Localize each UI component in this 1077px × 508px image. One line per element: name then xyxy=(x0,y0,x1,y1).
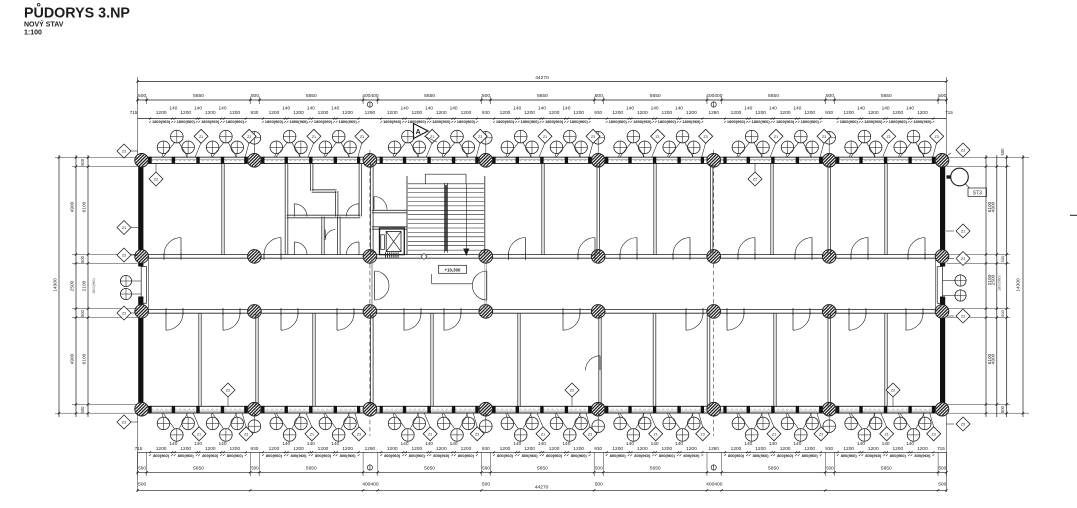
svg-text:1800(960): 1800(960) xyxy=(338,119,357,124)
svg-text:Z3: Z3 xyxy=(704,135,708,139)
svg-text:1800(960): 1800(960) xyxy=(457,119,476,124)
svg-text:5650: 5650 xyxy=(537,465,548,471)
svg-text:Z1: Z1 xyxy=(428,432,432,436)
svg-text:1200: 1200 xyxy=(868,110,879,116)
svg-text:1200: 1200 xyxy=(843,446,854,452)
svg-text:Z3: Z3 xyxy=(122,150,126,154)
svg-text:5650: 5650 xyxy=(881,465,892,471)
svg-text:800(960): 800(960) xyxy=(728,453,745,458)
svg-text:1200: 1200 xyxy=(780,110,791,116)
svg-text:140: 140 xyxy=(169,105,177,111)
svg-text:1800(960): 1800(960) xyxy=(152,119,171,124)
svg-text:500: 500 xyxy=(938,482,946,488)
svg-text:500: 500 xyxy=(251,93,259,99)
svg-text:500: 500 xyxy=(482,482,490,488)
svg-text:800(960): 800(960) xyxy=(753,453,770,458)
svg-text:1800(960): 1800(960) xyxy=(751,119,770,124)
svg-text:2500: 2500 xyxy=(70,280,76,291)
svg-text:1200: 1200 xyxy=(229,446,240,452)
svg-text:6100: 6100 xyxy=(82,201,88,212)
svg-text:Z3: Z3 xyxy=(122,254,126,258)
svg-text:930: 930 xyxy=(594,110,602,115)
svg-text:140: 140 xyxy=(744,441,752,447)
svg-text:500: 500 xyxy=(826,93,834,99)
svg-text:1200: 1200 xyxy=(436,446,447,452)
svg-text:1200: 1200 xyxy=(637,446,648,452)
svg-text:5650: 5650 xyxy=(424,465,435,471)
svg-text:500: 500 xyxy=(595,482,603,488)
svg-text:2100: 2100 xyxy=(82,280,88,291)
svg-text:6100: 6100 xyxy=(82,353,88,364)
svg-text:500: 500 xyxy=(138,93,146,99)
svg-text:Z1: Z1 xyxy=(885,432,889,436)
svg-text:1800(960): 1800(960) xyxy=(609,119,628,124)
svg-text:1200: 1200 xyxy=(411,446,422,452)
svg-text:4900: 4900 xyxy=(70,353,76,364)
svg-text:140: 140 xyxy=(307,441,315,447)
svg-text:1200: 1200 xyxy=(661,446,672,452)
svg-text:1200: 1200 xyxy=(318,110,329,116)
svg-text:1200: 1200 xyxy=(205,446,216,452)
svg-text:1200: 1200 xyxy=(573,446,584,452)
svg-text:140: 140 xyxy=(769,105,777,111)
svg-text:1200: 1200 xyxy=(229,110,240,116)
svg-text:1200: 1200 xyxy=(843,110,854,116)
svg-text:1200: 1200 xyxy=(686,446,697,452)
svg-text:1800(960): 1800(960) xyxy=(520,119,539,124)
svg-text:800(960): 800(960) xyxy=(610,453,627,458)
svg-text:1200: 1200 xyxy=(780,446,791,452)
svg-text:1290: 1290 xyxy=(708,446,719,451)
svg-text:5650: 5650 xyxy=(768,465,779,471)
svg-text:800(960): 800(960) xyxy=(571,453,588,458)
svg-text:Z2: Z2 xyxy=(154,178,158,182)
svg-text:1200: 1200 xyxy=(524,446,535,452)
svg-text:44270: 44270 xyxy=(535,485,549,491)
svg-text:Z3: Z3 xyxy=(357,432,361,436)
svg-text:14300: 14300 xyxy=(53,278,59,292)
svg-text:1200: 1200 xyxy=(755,110,766,116)
svg-text:500: 500 xyxy=(80,309,85,317)
svg-text:1200: 1200 xyxy=(524,110,535,116)
svg-text:800(960): 800(960) xyxy=(890,453,907,458)
svg-text:800(960): 800(960) xyxy=(458,453,475,458)
svg-text:5650: 5650 xyxy=(424,93,435,99)
svg-text:5650: 5650 xyxy=(768,93,779,99)
svg-text:140: 140 xyxy=(857,441,865,447)
svg-text:500: 500 xyxy=(826,465,834,470)
svg-text:500: 500 xyxy=(138,465,146,470)
svg-text:1200: 1200 xyxy=(917,446,928,452)
svg-text:Z3: Z3 xyxy=(478,135,482,139)
svg-text:Z1: Z1 xyxy=(887,135,891,139)
svg-text:5650: 5650 xyxy=(193,93,204,99)
svg-text:140: 140 xyxy=(400,105,408,111)
svg-text:Z3: Z3 xyxy=(122,421,126,425)
svg-text:500: 500 xyxy=(80,255,85,263)
svg-text:Z3: Z3 xyxy=(961,315,965,319)
svg-text:400400: 400400 xyxy=(362,482,379,488)
svg-text:500: 500 xyxy=(938,93,946,99)
svg-text:1200: 1200 xyxy=(387,446,398,452)
svg-text:800(960): 800(960) xyxy=(202,453,219,458)
svg-text:Z2: Z2 xyxy=(570,389,574,393)
svg-text:715: 715 xyxy=(937,446,945,451)
svg-text:140: 140 xyxy=(906,105,914,111)
svg-text:Z3: Z3 xyxy=(244,432,248,436)
svg-text:140: 140 xyxy=(538,105,546,111)
svg-text:1200: 1200 xyxy=(180,446,191,452)
svg-text:500: 500 xyxy=(482,465,490,470)
svg-text:Z1: Z1 xyxy=(197,432,201,436)
svg-text:800(960): 800(960) xyxy=(178,453,195,458)
svg-text:140: 140 xyxy=(857,105,865,111)
svg-text:140: 140 xyxy=(282,441,290,447)
svg-text:140: 140 xyxy=(169,441,177,447)
svg-text:Z3: Z3 xyxy=(819,432,823,436)
svg-text:140: 140 xyxy=(331,441,339,447)
svg-text:1800(960): 1800(960) xyxy=(864,119,883,124)
svg-text:140: 140 xyxy=(400,441,408,447)
svg-text:Z3: Z3 xyxy=(591,135,595,139)
svg-text:1200: 1200 xyxy=(612,110,623,116)
svg-text:1800(960): 1800(960) xyxy=(177,119,196,124)
svg-text:Z3: Z3 xyxy=(961,257,965,261)
svg-text:140: 140 xyxy=(282,105,290,111)
svg-text:Z2: Z2 xyxy=(891,389,895,393)
svg-text:140: 140 xyxy=(793,105,801,111)
svg-text:1800(960): 1800(960) xyxy=(840,119,859,124)
svg-text:1800(960): 1800(960) xyxy=(201,119,220,124)
svg-text:1800(960): 1800(960) xyxy=(776,119,795,124)
svg-text:5650: 5650 xyxy=(537,93,548,99)
svg-text:400400: 400400 xyxy=(706,93,723,99)
svg-text:800(960): 800(960) xyxy=(777,453,794,458)
svg-text:500: 500 xyxy=(251,465,259,470)
svg-text:1800(960): 1800(960) xyxy=(226,119,245,124)
svg-text:140: 140 xyxy=(651,105,659,111)
svg-text:930: 930 xyxy=(482,110,490,115)
svg-text:1200: 1200 xyxy=(156,110,167,116)
svg-text:Z1: Z1 xyxy=(430,135,434,139)
svg-text:140: 140 xyxy=(562,441,570,447)
svg-text:4900: 4900 xyxy=(70,201,76,212)
svg-text:Z1: Z1 xyxy=(541,432,545,436)
svg-text:140: 140 xyxy=(882,105,890,111)
svg-text:Z3: Z3 xyxy=(475,432,479,436)
svg-text:500: 500 xyxy=(80,406,85,414)
svg-text:1800(960): 1800(960) xyxy=(889,119,908,124)
svg-text:500: 500 xyxy=(1000,255,1005,262)
svg-text:1800(960): 1800(960) xyxy=(913,119,932,124)
svg-text:400400: 400400 xyxy=(706,482,723,488)
svg-text:44270: 44270 xyxy=(535,75,549,81)
svg-text:930: 930 xyxy=(825,446,833,451)
svg-text:4900: 4900 xyxy=(990,201,996,212)
svg-text:1200: 1200 xyxy=(500,446,511,452)
svg-text:500: 500 xyxy=(1000,309,1005,316)
svg-text:140: 140 xyxy=(562,105,570,111)
svg-text:800(960): 800(960) xyxy=(522,453,539,458)
svg-text:Z3: Z3 xyxy=(932,432,936,436)
svg-text:1200: 1200 xyxy=(804,446,815,452)
svg-text:500: 500 xyxy=(80,158,85,166)
svg-text:500: 500 xyxy=(482,93,490,99)
svg-text:1200: 1200 xyxy=(180,110,191,116)
svg-text:Z2: Z2 xyxy=(753,178,757,182)
svg-text:Z3: Z3 xyxy=(961,423,965,427)
svg-text:1800(960): 1800(960) xyxy=(801,119,820,124)
svg-text:140: 140 xyxy=(744,105,752,111)
svg-text:1200: 1200 xyxy=(461,110,472,116)
svg-text:800(960): 800(960) xyxy=(634,453,651,458)
svg-text:1200: 1200 xyxy=(731,446,742,452)
svg-text:1800(960): 1800(960) xyxy=(658,119,677,124)
svg-text:800(960): 800(960) xyxy=(340,453,357,458)
svg-text:800(960): 800(960) xyxy=(865,453,882,458)
svg-text:Z3: Z3 xyxy=(247,135,251,139)
svg-text:1800(960): 1800(960) xyxy=(998,275,1002,290)
svg-text:1200: 1200 xyxy=(731,110,742,116)
svg-text:5650: 5650 xyxy=(193,465,204,471)
svg-text:1800(960): 1800(960) xyxy=(314,119,333,124)
svg-text:930: 930 xyxy=(250,446,258,451)
svg-text:1200: 1200 xyxy=(342,110,353,116)
svg-text:Z1: Z1 xyxy=(122,226,126,230)
svg-text:5650: 5650 xyxy=(881,93,892,99)
svg-text:1800(960): 1800(960) xyxy=(92,278,96,293)
svg-text:1200: 1200 xyxy=(269,446,280,452)
svg-text:500: 500 xyxy=(1000,405,1005,413)
svg-text:1:100: 1:100 xyxy=(24,30,42,37)
svg-text:140: 140 xyxy=(194,441,202,447)
svg-text:140: 140 xyxy=(882,441,890,447)
svg-text:14300: 14300 xyxy=(1016,278,1022,292)
svg-text:800(960): 800(960) xyxy=(315,453,332,458)
svg-text:5650: 5650 xyxy=(306,465,317,471)
svg-text:715: 715 xyxy=(130,110,138,115)
svg-text:1200: 1200 xyxy=(573,110,584,116)
svg-text:500: 500 xyxy=(595,93,603,99)
svg-text:2500: 2500 xyxy=(990,274,996,285)
svg-text:800(960): 800(960) xyxy=(683,453,700,458)
svg-text:1200: 1200 xyxy=(612,446,623,452)
svg-text:140: 140 xyxy=(218,441,226,447)
svg-text:140: 140 xyxy=(450,441,458,447)
svg-text:1200: 1200 xyxy=(868,446,879,452)
svg-text:Z1: Z1 xyxy=(961,230,965,234)
svg-text:4900: 4900 xyxy=(990,353,996,364)
svg-text:NOVÝ STAV: NOVÝ STAV xyxy=(24,20,64,29)
svg-text:800(960): 800(960) xyxy=(227,453,244,458)
svg-text:800(960): 800(960) xyxy=(914,453,931,458)
svg-text:1200: 1200 xyxy=(500,110,511,116)
svg-text:800(960): 800(960) xyxy=(802,453,819,458)
svg-text:Z1: Z1 xyxy=(656,135,660,139)
svg-text:1800(960): 1800(960) xyxy=(633,119,652,124)
svg-text:140: 140 xyxy=(425,441,433,447)
svg-text:Z3: Z3 xyxy=(588,432,592,436)
svg-text:Z1: Z1 xyxy=(310,432,314,436)
svg-text:800(960): 800(960) xyxy=(433,453,450,458)
svg-text:140: 140 xyxy=(626,105,634,111)
svg-text:140: 140 xyxy=(793,441,801,447)
svg-text:140: 140 xyxy=(218,105,226,111)
svg-text:1200: 1200 xyxy=(755,446,766,452)
svg-text:Z3: Z3 xyxy=(961,149,965,153)
svg-text:PŮDORYS 3.NP: PŮDORYS 3.NP xyxy=(24,3,130,22)
svg-text:1800(960): 1800(960) xyxy=(496,119,515,124)
svg-text:140: 140 xyxy=(425,105,433,111)
svg-text:+10,300: +10,300 xyxy=(445,267,462,272)
svg-text:1800(960): 1800(960) xyxy=(289,119,308,124)
svg-text:140: 140 xyxy=(675,105,683,111)
svg-text:800(960): 800(960) xyxy=(266,453,283,458)
svg-text:1800(960): 1800(960) xyxy=(432,119,451,124)
svg-text:Z3: Z3 xyxy=(122,312,126,316)
svg-text:Z3: Z3 xyxy=(360,135,364,139)
svg-text:140: 140 xyxy=(513,105,521,111)
svg-text:1200: 1200 xyxy=(387,110,398,116)
svg-text:5650: 5650 xyxy=(306,93,317,99)
svg-text:1800(960): 1800(960) xyxy=(570,119,589,124)
svg-text:715: 715 xyxy=(945,110,953,115)
svg-text:1200: 1200 xyxy=(156,446,167,452)
svg-text:1800(960): 1800(960) xyxy=(383,119,402,124)
svg-text:1200: 1200 xyxy=(205,110,216,116)
svg-text:1800(960): 1800(960) xyxy=(682,119,701,124)
svg-text:800(960): 800(960) xyxy=(546,453,563,458)
svg-text:Z1: Z1 xyxy=(774,135,778,139)
svg-text:1290: 1290 xyxy=(365,110,376,115)
svg-text:400400: 400400 xyxy=(362,93,379,99)
svg-text:800(960): 800(960) xyxy=(841,453,858,458)
svg-text:1290: 1290 xyxy=(708,110,719,115)
svg-text:500: 500 xyxy=(138,482,146,488)
svg-text:1200: 1200 xyxy=(293,110,304,116)
svg-text:5650: 5650 xyxy=(650,465,661,471)
svg-text:930: 930 xyxy=(825,110,833,115)
svg-text:1200: 1200 xyxy=(917,110,928,116)
svg-text:1200: 1200 xyxy=(892,446,903,452)
svg-text:1200: 1200 xyxy=(637,110,648,116)
svg-text:500: 500 xyxy=(595,465,603,470)
svg-text:1200: 1200 xyxy=(269,110,280,116)
svg-text:1200: 1200 xyxy=(293,446,304,452)
svg-text:1200: 1200 xyxy=(686,110,697,116)
svg-text:Z3: Z3 xyxy=(935,135,939,139)
svg-text:5650: 5650 xyxy=(650,93,661,99)
svg-text:1800(960): 1800(960) xyxy=(265,119,284,124)
svg-text:1200: 1200 xyxy=(436,110,447,116)
svg-text:930: 930 xyxy=(250,110,258,115)
svg-text:800(960): 800(960) xyxy=(497,453,514,458)
svg-text:Z1: Z1 xyxy=(312,135,316,139)
svg-text:140: 140 xyxy=(194,105,202,111)
svg-text:1290: 1290 xyxy=(365,446,376,451)
svg-text:1200: 1200 xyxy=(892,110,903,116)
svg-text:140: 140 xyxy=(513,441,521,447)
svg-text:140: 140 xyxy=(675,441,683,447)
svg-text:1200: 1200 xyxy=(549,110,560,116)
svg-text:800(960): 800(960) xyxy=(290,453,307,458)
svg-text:ST3: ST3 xyxy=(973,191,982,197)
svg-text:715: 715 xyxy=(135,446,143,451)
svg-text:Z3: Z3 xyxy=(701,432,705,436)
svg-text:1800(960): 1800(960) xyxy=(545,119,564,124)
svg-text:Z1: Z1 xyxy=(654,432,658,436)
svg-text:800(960): 800(960) xyxy=(409,453,426,458)
svg-text:140: 140 xyxy=(538,441,546,447)
svg-text:1200: 1200 xyxy=(661,110,672,116)
svg-text:Z1: Z1 xyxy=(543,135,547,139)
svg-text:1200: 1200 xyxy=(804,110,815,116)
svg-text:1200: 1200 xyxy=(461,446,472,452)
svg-text:1200: 1200 xyxy=(318,446,329,452)
svg-text:Z1: Z1 xyxy=(199,135,203,139)
svg-text:Z1: Z1 xyxy=(772,432,776,436)
svg-text:500: 500 xyxy=(938,465,946,470)
svg-text:140: 140 xyxy=(626,441,634,447)
svg-text:800(960): 800(960) xyxy=(153,453,170,458)
svg-text:930: 930 xyxy=(482,446,490,451)
svg-text:1200: 1200 xyxy=(342,446,353,452)
svg-text:1800(960): 1800(960) xyxy=(408,119,427,124)
svg-text:140: 140 xyxy=(331,105,339,111)
svg-text:1800(960): 1800(960) xyxy=(727,119,746,124)
svg-text:800(960): 800(960) xyxy=(659,453,676,458)
svg-text:Z3: Z3 xyxy=(822,135,826,139)
svg-text:140: 140 xyxy=(307,105,315,111)
svg-text:140: 140 xyxy=(906,441,914,447)
svg-text:A: A xyxy=(416,129,421,136)
svg-text:140: 140 xyxy=(450,105,458,111)
svg-text:500: 500 xyxy=(1000,148,1005,156)
svg-text:140: 140 xyxy=(651,441,659,447)
svg-text:800(960): 800(960) xyxy=(384,453,401,458)
svg-text:Z2: Z2 xyxy=(226,389,230,393)
svg-text:930: 930 xyxy=(594,446,602,451)
svg-text:140: 140 xyxy=(769,441,777,447)
svg-text:1200: 1200 xyxy=(411,110,422,116)
svg-text:1200: 1200 xyxy=(549,446,560,452)
